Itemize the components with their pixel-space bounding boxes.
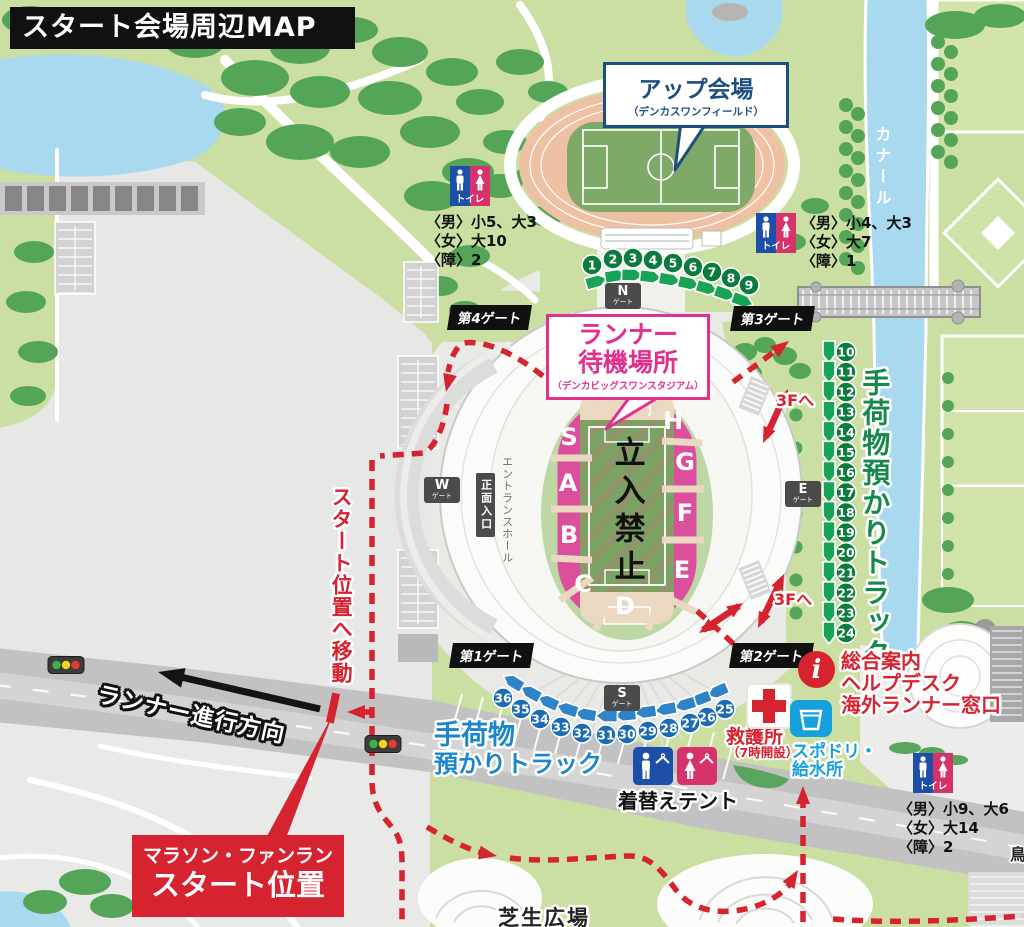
warmup-title: アップ会場 [606,70,786,104]
section-H: H [663,407,683,435]
changing-tent-label: 着替えテント [618,790,738,813]
west-gate-suffix: ゲート [426,492,458,499]
toilet-accessible-count: 〈障〉2 [898,838,1009,857]
svg-text:7: 7 [708,265,717,280]
venue-map: 1234567891011121314151617181920212223242… [0,0,1024,927]
man-icon [913,753,933,780]
to-3f-upper: 3Fへ [776,392,814,410]
svg-text:16: 16 [837,465,855,480]
section-S: S [560,423,577,451]
warmup-subtitle: （デンカスワンフィールド） [606,104,786,119]
toilet-men-count: 〈男〉小5、大3 [426,213,537,232]
svg-text:3: 3 [629,251,638,266]
svg-text:21: 21 [837,565,854,580]
svg-text:29: 29 [639,724,656,739]
entrance-hall-label: エントランスホール [500,456,513,564]
info-i-glyph: i [812,657,822,683]
toilet-count-northwest: 〈男〉小5、大3 〈女〉大10 〈障〉2 [426,213,537,271]
man-icon [450,166,470,193]
woman-icon [470,166,490,193]
toilet-women-count: 〈女〉大7 [801,233,912,252]
svg-text:5: 5 [669,256,678,271]
toilet-accessible-count: 〈障〉2 [426,251,537,270]
svg-text:18: 18 [837,505,854,520]
baggage-trucks-south-label: 手荷物 預かりトラック [434,720,602,779]
south-gate-label: S ゲート [604,685,640,711]
info-icon: i [798,651,835,688]
svg-text:11: 11 [837,365,854,380]
north-gate-label: N ゲート [605,283,641,309]
toilet-accessible-count: 〈障〉1 [801,252,912,271]
section-G: G [675,448,695,476]
toilet-count-northeast: 〈男〉小4、大3 〈女〉大7 〈障〉1 [801,214,912,272]
svg-text:10: 10 [837,345,855,360]
west-gate-letter: W [424,479,460,492]
svg-text:4: 4 [649,253,658,268]
svg-text:6: 6 [689,260,698,275]
changing-tent-women-icon [677,747,717,785]
section-C: C [574,570,592,598]
toilet-men-count: 〈男〉小4、大3 [801,214,912,233]
info-label3: 海外ランナー窓口 [841,694,1001,717]
info-label2: ヘルプデスク [841,672,961,695]
drink-station-label2: 給水所 [792,761,843,781]
toilet-sign-south: トイレ [913,753,953,793]
svg-text:26: 26 [698,710,716,725]
runner-wait-callout: ランナー 待機場所 （デンカビッグスワンスタジアム） [546,314,710,400]
svg-text:2: 2 [609,252,618,267]
north-gate-suffix: ゲート [607,298,639,305]
east-gate-suffix: ゲート [787,496,819,503]
toilet-men-count: 〈男〉小9、大6 [898,800,1009,819]
cup-icon [798,706,824,732]
east-gate-letter: E [785,483,821,496]
canal-bridge [798,280,980,324]
svg-text:28: 28 [660,721,677,736]
svg-text:1: 1 [588,258,597,273]
toilet-sign-northeast: トイレ [756,213,796,253]
woman-hanger-icon [680,751,714,781]
man-icon [756,213,776,240]
wait-subtitle: （デンカビッグスワンスタジアム） [549,378,707,392]
start-box-line2: スタート位置 [132,868,344,903]
gate4-label: 第4ゲート [447,305,532,330]
woman-icon [776,213,796,240]
svg-text:19: 19 [837,525,854,540]
svg-text:30: 30 [618,727,636,742]
lawn-area-label: 芝生広場 [498,906,590,927]
toilet-women-count: 〈女〉大14 [898,819,1009,838]
man-hanger-icon [636,751,670,781]
section-A: A [559,469,578,497]
south-gate-letter: S [604,687,640,700]
edge-cut-label: 鳥 [1010,846,1024,864]
svg-text:8: 8 [727,271,736,286]
main-entrance-badge: 正面入口 [476,473,495,537]
no-entry-label: 立入禁止 [608,436,644,588]
start-box-line1: マラソン・ファンラン [132,845,344,868]
baggage-trucks-east-label: 手荷物預かりトラック [858,368,890,668]
toilet-label: トイレ [756,240,796,253]
wait-line1: ランナー [549,321,707,349]
svg-text:12: 12 [837,385,854,400]
svg-text:14: 14 [837,425,855,440]
baggage-south-line2: 預かりトラック [434,751,602,779]
baggage-south-line1: 手荷物 [434,720,602,751]
toilet-label: トイレ [450,193,490,206]
canal-label: カナール [872,126,890,210]
warmup-callout: アップ会場 （デンカスワンフィールド） [603,62,789,128]
svg-text:35: 35 [512,702,529,717]
svg-text:24: 24 [837,625,855,640]
first-aid-note: （7時開設） [727,746,798,760]
changing-tent-men-icon [633,747,673,785]
toilet-count-south: 〈男〉小9、大6 〈女〉大14 〈障〉2 [898,800,1009,858]
page-title: スタート会場周辺MAP [10,7,355,49]
svg-text:20: 20 [837,545,855,560]
svg-text:27: 27 [681,716,698,731]
first-aid-icon [746,683,792,729]
red-cross-icon [752,689,786,723]
start-position-box: マラソン・ファンラン スタート位置 [132,835,344,917]
gate1-label: 第1ゲート [449,643,534,668]
to-3f-lower: 3Fへ [774,591,812,609]
gate3-label: 第3ゲート [730,306,815,331]
svg-text:15: 15 [837,445,854,460]
section-F: F [677,499,693,527]
svg-text:13: 13 [837,405,854,420]
info-label1: 総合案内 [841,650,921,673]
svg-text:23: 23 [837,605,854,620]
svg-text:36: 36 [494,691,512,706]
svg-text:9: 9 [745,278,754,293]
move-to-start-label: スタート位置へ移動 [329,486,353,684]
svg-text:25: 25 [716,702,733,717]
south-gate-suffix: ゲート [606,700,638,707]
drink-station-icon [790,700,832,737]
north-gate-letter: N [605,285,641,298]
west-gate-label: W ゲート [424,477,460,503]
toilet-label: トイレ [913,780,953,793]
woman-icon [933,753,953,780]
svg-text:22: 22 [837,585,854,600]
toilet-women-count: 〈女〉大10 [426,232,537,251]
toilet-sign-northwest: トイレ [450,166,490,206]
section-E: E [674,556,690,584]
section-D: D [615,592,635,620]
svg-text:17: 17 [837,485,854,500]
wait-line2: 待機場所 [549,349,707,377]
east-gate-label: E ゲート [785,481,821,507]
section-B: B [560,521,578,549]
